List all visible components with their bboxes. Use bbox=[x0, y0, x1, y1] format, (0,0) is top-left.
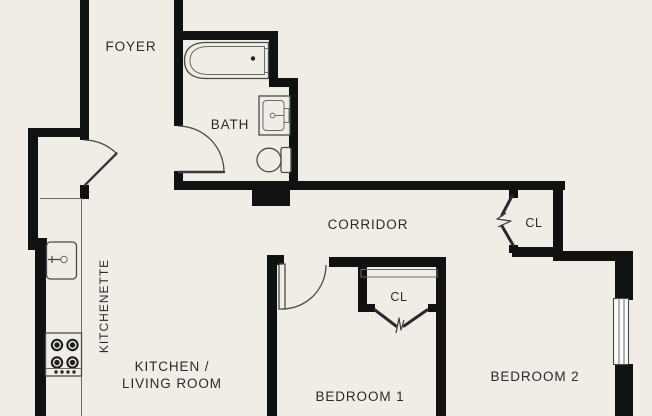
kitchen-counter bbox=[40, 198, 82, 416]
floor-plan-drawing: FOYER BATH CORRIDOR KITCHENETTE KITCHEN … bbox=[0, 0, 652, 416]
wall-closet-corridor-right bbox=[553, 181, 563, 261]
wall-bath-right-upper bbox=[269, 31, 278, 81]
label-bath: BATH bbox=[211, 117, 250, 132]
wall-bedroom-divider bbox=[436, 257, 446, 416]
wall-bath-top bbox=[174, 31, 278, 40]
wall-entry-stub bbox=[80, 185, 89, 199]
wall-left-outer-lower bbox=[35, 245, 46, 416]
plumbing-chase bbox=[252, 190, 290, 206]
entry-door bbox=[84, 140, 117, 185]
wall-corridor-top bbox=[174, 181, 565, 190]
label-kitchen-living-line1: KITCHEN / bbox=[135, 359, 210, 374]
stove bbox=[46, 333, 82, 376]
bath-door bbox=[178, 126, 224, 172]
bath-door-arc bbox=[178, 126, 224, 172]
wall-foyer-left bbox=[80, 0, 89, 140]
entry-door-leaf bbox=[85, 154, 117, 186]
bathroom-sink bbox=[259, 96, 290, 135]
window-bedroom2 bbox=[614, 299, 629, 365]
label-kitchenette: KITCHENETTE bbox=[97, 259, 111, 353]
toilet bbox=[257, 148, 291, 173]
bathtub-drain bbox=[251, 56, 255, 60]
bedroom1-door bbox=[279, 264, 326, 309]
closet-bedroom1-bifold-door bbox=[375, 310, 427, 333]
entry-door-arc bbox=[84, 140, 117, 154]
wall-bedroom2-right-upper bbox=[615, 251, 633, 300]
wall-closet1-right-stub bbox=[428, 304, 446, 312]
bedroom1-door-leaf bbox=[279, 264, 285, 309]
floor-plan: FOYER BATH CORRIDOR KITCHENETTE KITCHEN … bbox=[0, 0, 652, 416]
label-bedroom1: BEDROOM 1 bbox=[315, 389, 404, 404]
walls bbox=[28, 0, 633, 416]
closet-bedroom1-shelf bbox=[361, 270, 437, 278]
label-bedroom2: BEDROOM 2 bbox=[490, 369, 579, 384]
wall-bedroom1-left bbox=[267, 255, 277, 416]
wall-bedroom1-top bbox=[329, 257, 446, 267]
label-closet-corridor: CL bbox=[525, 216, 542, 230]
label-foyer: FOYER bbox=[105, 39, 156, 54]
bathtub bbox=[185, 43, 269, 79]
label-corridor: CORRIDOR bbox=[328, 217, 409, 232]
wall-bath-left bbox=[174, 0, 183, 126]
label-closet-bedroom1: CL bbox=[390, 290, 407, 304]
wall-closet1-left-stub bbox=[358, 304, 375, 312]
bedroom1-door-arc bbox=[282, 265, 326, 309]
wall-bedroom2-right-lower bbox=[615, 364, 633, 416]
kitchen-sink bbox=[47, 242, 77, 279]
label-kitchen-living-line2: LIVING ROOM bbox=[122, 376, 222, 391]
wall-closet-corridor-bottom bbox=[512, 247, 553, 257]
closet-corridor-bifold-door bbox=[497, 190, 518, 253]
wall-left-outer-upper bbox=[28, 128, 38, 246]
